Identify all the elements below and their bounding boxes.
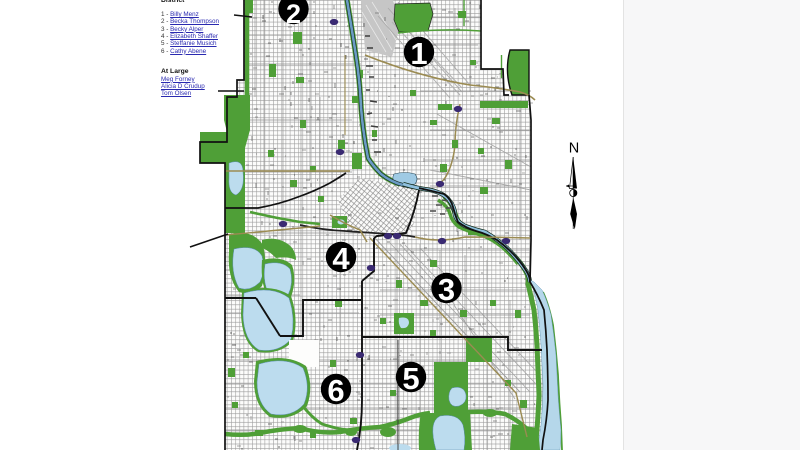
svg-text:3: 3 (438, 272, 455, 307)
svg-text:4: 4 (332, 241, 350, 276)
svg-text:N: N (569, 141, 579, 157)
svg-text:5: 5 (402, 361, 419, 396)
svg-text:2: 2 (286, 0, 301, 29)
svg-text:6: 6 (327, 373, 344, 408)
svg-text:1: 1 (410, 36, 427, 71)
